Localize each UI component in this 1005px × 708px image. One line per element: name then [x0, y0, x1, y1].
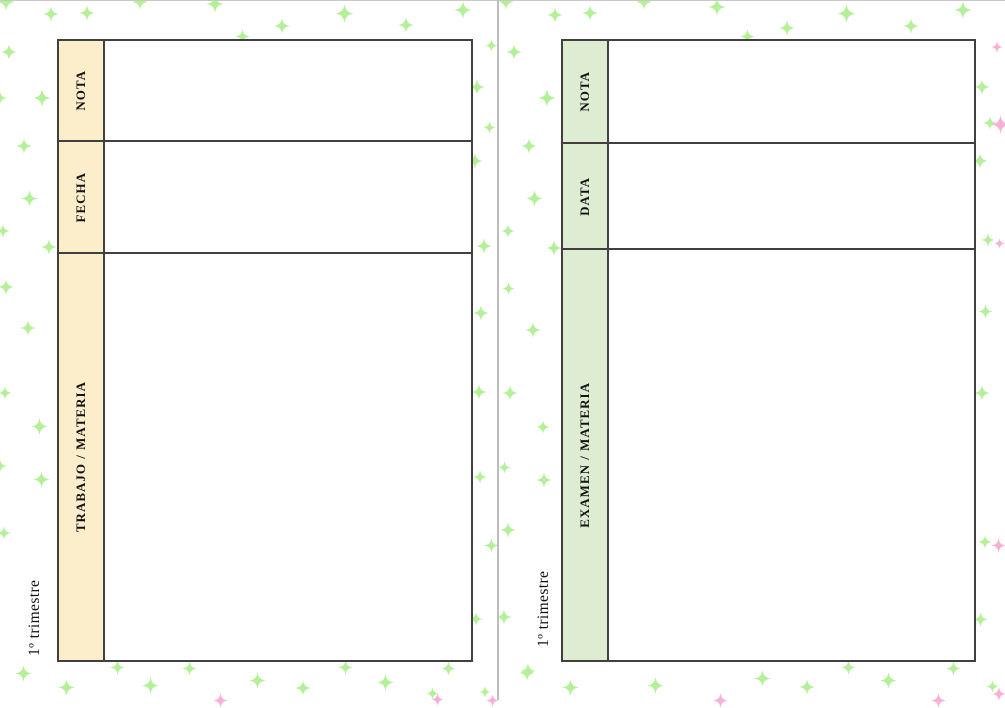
sparkle-icon: [15, 665, 32, 682]
header-label: NOTA: [73, 70, 89, 111]
sparkle-icon: [526, 190, 543, 207]
sparkle-icon: [502, 385, 518, 401]
sparkle-icon: [546, 240, 562, 256]
sparkle-icon: [500, 522, 516, 538]
header-cell-trabajo-materia: TRABAJO / MATERIA: [59, 254, 105, 660]
sparkle-icon: [31, 418, 48, 435]
sparkle-icon: [994, 238, 1005, 249]
sparkle-icon: [33, 89, 51, 107]
table-row-examen-materia: EXAMEN / MATERIA: [563, 248, 974, 660]
sparkle-icon: [16, 138, 32, 154]
sparkle-icon: [33, 471, 50, 488]
sparkle-icon: [1, 44, 17, 60]
sparkle-icon: [538, 89, 556, 107]
trimester-title-right: 1º trimestre: [535, 561, 553, 647]
sparkle-icon: [779, 20, 795, 36]
sparkle-icon: [20, 320, 36, 336]
sparkle-icon: [398, 17, 414, 33]
sparkle-icon: [502, 282, 515, 295]
sparkle-icon: [473, 470, 487, 484]
empty-cell: [105, 41, 471, 140]
sparkle-icon: [182, 661, 197, 676]
sparkle-icon: [536, 420, 550, 434]
table-row-nota: NOTA: [563, 41, 974, 142]
sparkle-icon: [485, 39, 498, 52]
sparkle-icon: [0, 91, 7, 105]
sparkle-icon: [974, 385, 990, 401]
sparkle-icon: [132, 0, 148, 10]
planner-spread: { "pages": { "left": { "title": "1º trim…: [0, 0, 1005, 700]
sparkle-icon: [58, 679, 75, 696]
sparkle-icon: [991, 538, 1005, 553]
sparkle-icon: [498, 0, 514, 10]
sparkle-icon: [79, 5, 95, 21]
header-cell-nota: NOTA: [59, 41, 105, 140]
sparkle-icon: [0, 279, 14, 295]
empty-cell: [105, 254, 471, 660]
sparkle-icon: [454, 1, 472, 19]
sparkle-icon: [0, 386, 12, 400]
header-label: DATA: [577, 177, 593, 216]
sparkle-icon: [295, 680, 311, 696]
header-cell-nota: NOTA: [563, 41, 609, 142]
sparkle-icon: [954, 1, 972, 19]
sparkle-icon: [206, 0, 224, 13]
sparkle-icon: [519, 665, 535, 681]
sparkle-icon: [501, 224, 515, 238]
sparkle-icon: [41, 239, 57, 255]
sparkle-icon: [903, 18, 919, 34]
empty-cell: [609, 250, 974, 660]
sparkle-icon: [274, 18, 290, 34]
header-label: EXAMEN / MATERIA: [577, 382, 593, 528]
sparkle-icon: [0, 0, 15, 11]
sparkle-icon: [582, 5, 598, 21]
header-label: FECHA: [73, 172, 89, 223]
table-row-nota: NOTA: [59, 41, 471, 140]
sparkle-icon: [636, 0, 652, 10]
sparkle-icon: [335, 4, 354, 23]
sparkle-icon: [991, 41, 1003, 53]
sparkle-icon: [21, 190, 38, 207]
sparkle-icon: [931, 693, 946, 708]
sparkle-icon: [562, 679, 579, 696]
sparkle-icon: [43, 6, 59, 22]
table-row-fecha: FECHA: [59, 140, 471, 252]
header-cell-examen-materia: EXAMEN / MATERIA: [563, 250, 609, 660]
sparkle-icon: [946, 661, 961, 676]
sparkle-icon: [498, 461, 511, 474]
sparkle-icon: [992, 687, 1005, 701]
empty-cell: [105, 142, 471, 252]
sparkle-icon: [647, 677, 664, 694]
header-cell-fecha: FECHA: [59, 142, 105, 252]
sparkle-icon: [0, 459, 7, 473]
sparkle-icon: [536, 472, 552, 488]
header-label: TRABAJO / MATERIA: [73, 381, 89, 532]
sparkle-icon: [837, 4, 856, 23]
sparkle-icon: [991, 115, 1005, 134]
sparkle-icon: [754, 670, 771, 687]
sparkle-icon: [483, 121, 496, 134]
sparkle-icon: [441, 661, 456, 676]
sparkle-icon: [473, 305, 489, 321]
header-cell-data: DATA: [563, 144, 609, 248]
grades-table-left: NOTA FECHA TRABAJO / MATERIA: [57, 39, 473, 662]
sparkle-icon: [0, 526, 11, 540]
sparkle-icon: [249, 672, 266, 689]
sparkle-icon: [799, 679, 815, 695]
table-row-trabajo-materia: TRABAJO / MATERIA: [59, 252, 471, 660]
sparkle-icon: [713, 693, 728, 708]
sparkle-icon: [880, 672, 897, 689]
table-row-data: DATA: [563, 142, 974, 248]
sparkle-icon: [525, 322, 541, 338]
sparkle-icon: [476, 238, 492, 254]
sparkle-icon: [547, 7, 563, 23]
sparkle-icon: [431, 693, 444, 706]
sparkle-icon: [974, 79, 990, 95]
sparkle-icon: [0, 224, 10, 238]
sparkle-icon: [521, 138, 537, 154]
page-divider: [497, 0, 499, 700]
sparkle-icon: [142, 677, 159, 694]
empty-cell: [609, 41, 974, 142]
header-label: NOTA: [577, 71, 593, 112]
sparkle-icon: [213, 693, 228, 708]
empty-cell: [609, 144, 974, 248]
sparkle-icon: [506, 44, 522, 60]
page-top-edge: [0, 0, 1005, 1]
sparkle-icon: [377, 674, 394, 691]
sparkle-icon: [978, 304, 993, 319]
sparkle-icon: [471, 384, 487, 400]
grades-table-right: NOTA DATA EXAMEN / MATERIA: [561, 39, 976, 662]
trimester-title-left: 1º trimestre: [26, 574, 44, 656]
sparkle-icon: [708, 0, 726, 16]
